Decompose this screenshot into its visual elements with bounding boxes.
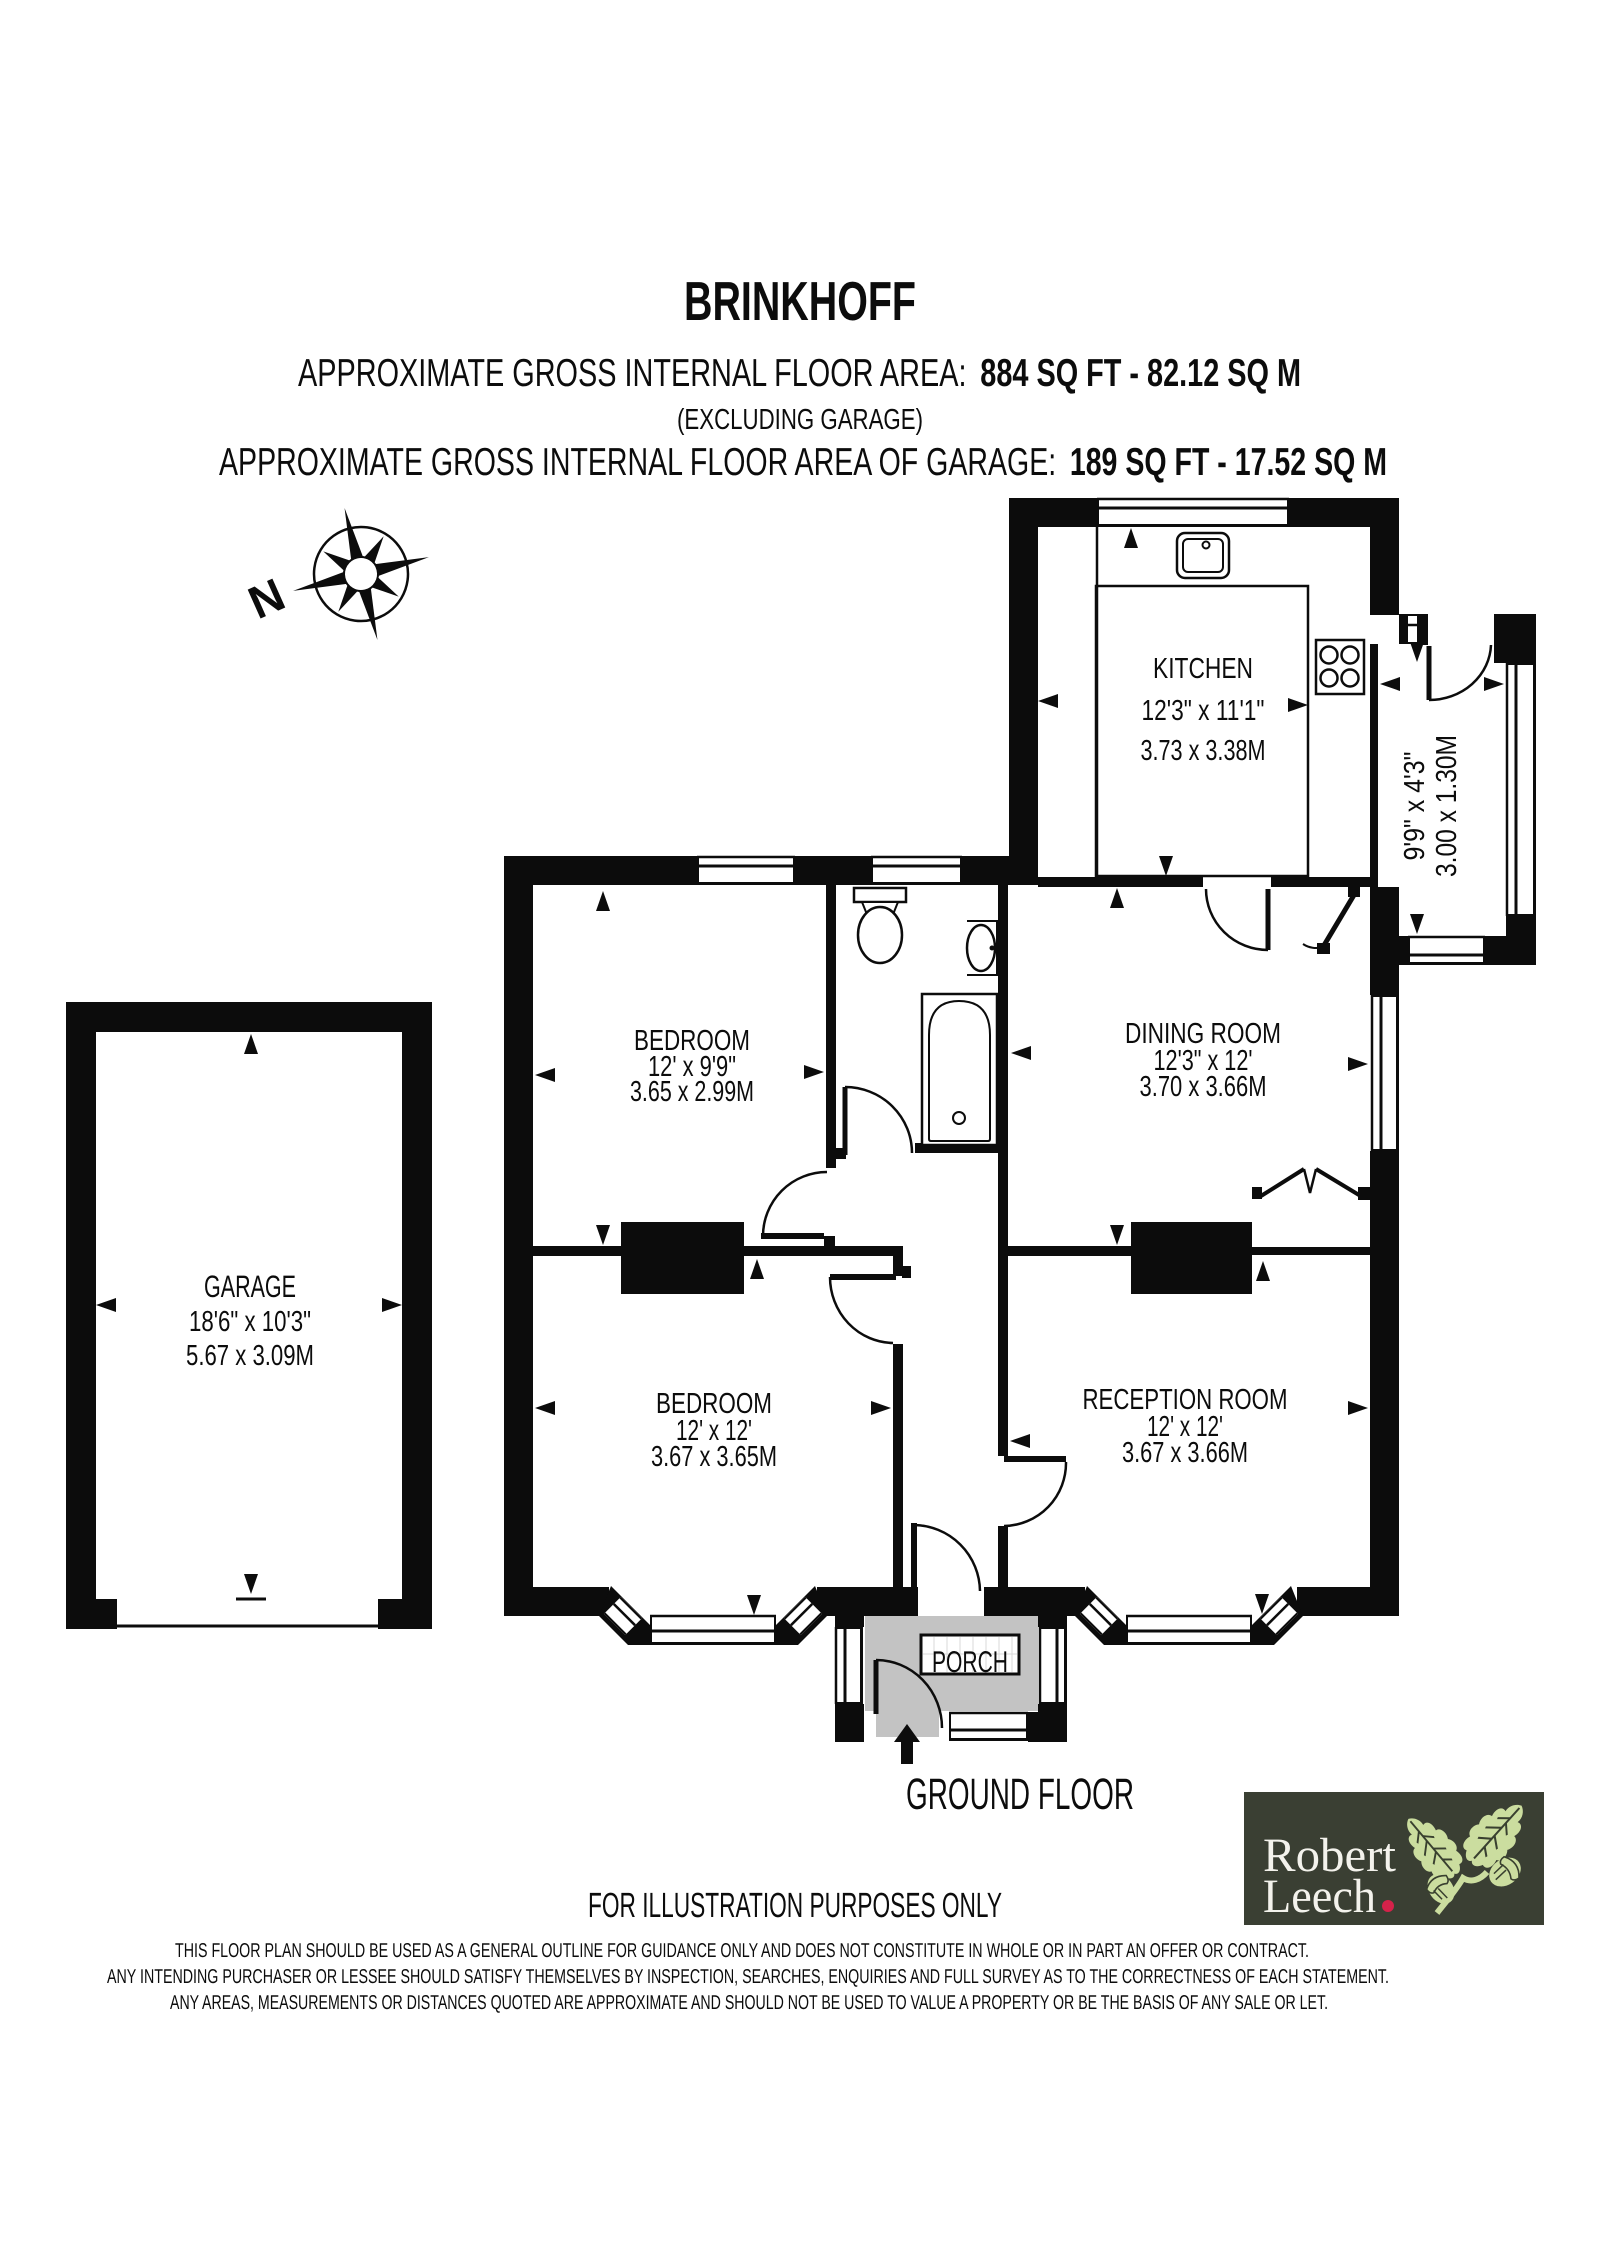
svg-text:3.70 x 3.66M: 3.70 x 3.66M (1140, 1071, 1267, 1103)
svg-text:PORCH: PORCH (932, 1646, 1008, 1679)
svg-text:KITCHEN: KITCHEN (1153, 653, 1253, 685)
svg-text:THIS FLOOR PLAN SHOULD BE USED: THIS FLOOR PLAN SHOULD BE USED AS A GENE… (175, 1940, 1309, 1962)
svg-text:APPROXIMATE GROSS INTERNAL FLO: APPROXIMATE GROSS INTERNAL FLOOR AREA OF… (219, 441, 1387, 484)
svg-text:Leech: Leech (1263, 1870, 1376, 1923)
svg-text:ANY INTENDING PURCHASER OR LES: ANY INTENDING PURCHASER OR LESSEE SHOULD… (107, 1966, 1389, 1988)
svg-text:FOR ILLUSTRATION PURPOSES ONLY: FOR ILLUSTRATION PURPOSES ONLY (588, 1886, 1002, 1925)
svg-text:GROUND FLOOR: GROUND FLOOR (906, 1770, 1134, 1819)
svg-text:GARAGE: GARAGE (204, 1269, 296, 1304)
svg-text:APPROXIMATE GROSS INTERNAL FLO: APPROXIMATE GROSS INTERNAL FLOOR AREA: 8… (298, 352, 1301, 395)
svg-text:5.67 x 3.09M: 5.67 x 3.09M (186, 1340, 314, 1372)
svg-text:ANY AREAS, MEASUREMENTS OR DIS: ANY AREAS, MEASUREMENTS OR DISTANCES QUO… (170, 1992, 1328, 2014)
svg-text:(EXCLUDING GARAGE): (EXCLUDING GARAGE) (677, 404, 923, 436)
svg-text:9'9" x 4'3": 9'9" x 4'3" (1399, 752, 1431, 861)
svg-text:3.73 x 3.38M: 3.73 x 3.38M (1141, 735, 1266, 767)
svg-text:12'3" x 11'1": 12'3" x 11'1" (1142, 695, 1265, 727)
svg-text:BRINKHOFF: BRINKHOFF (684, 270, 916, 332)
svg-text:3.00 x 1.30M: 3.00 x 1.30M (1431, 735, 1463, 877)
svg-text:3.67 x 3.65M: 3.67 x 3.65M (651, 1441, 777, 1473)
svg-text:3.67 x 3.66M: 3.67 x 3.66M (1122, 1437, 1248, 1469)
svg-text:3.65 x 2.99M: 3.65 x 2.99M (630, 1076, 754, 1108)
svg-text:18'6" x 10'3": 18'6" x 10'3" (189, 1306, 311, 1338)
